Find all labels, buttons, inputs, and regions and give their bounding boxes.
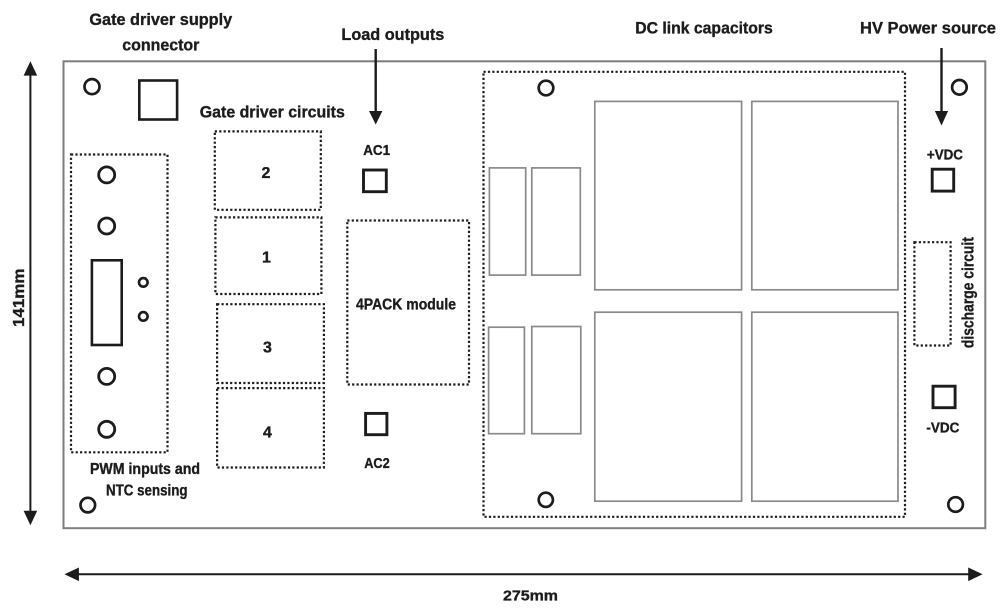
svg-text:HV Power source: HV Power source — [860, 20, 996, 38]
svg-text:4PACK module: 4PACK module — [356, 297, 456, 314]
svg-text:2: 2 — [262, 165, 271, 182]
svg-text:PWM inputs and: PWM inputs and — [90, 461, 200, 478]
svg-text:Load outputs: Load outputs — [341, 25, 444, 44]
svg-text:3: 3 — [263, 340, 272, 357]
svg-text:NTC sensing: NTC sensing — [106, 483, 188, 500]
svg-text:Gate driver supply: Gate driver supply — [89, 10, 232, 29]
svg-text:AC1: AC1 — [363, 142, 390, 159]
svg-text:-VDC: -VDC — [926, 421, 959, 437]
svg-text:discharge circuit: discharge circuit — [960, 237, 978, 348]
svg-text:Gate driver circuits: Gate driver circuits — [200, 103, 345, 122]
svg-text:DC link capacitors: DC link capacitors — [635, 20, 773, 38]
svg-text:4: 4 — [263, 425, 272, 442]
svg-text:+VDC: +VDC — [927, 148, 963, 164]
svg-text:AC2: AC2 — [364, 455, 390, 472]
svg-text:141mm: 141mm — [11, 269, 28, 328]
svg-text:connector: connector — [122, 36, 200, 55]
svg-text:275mm: 275mm — [503, 588, 558, 605]
svg-text:1: 1 — [262, 250, 271, 267]
